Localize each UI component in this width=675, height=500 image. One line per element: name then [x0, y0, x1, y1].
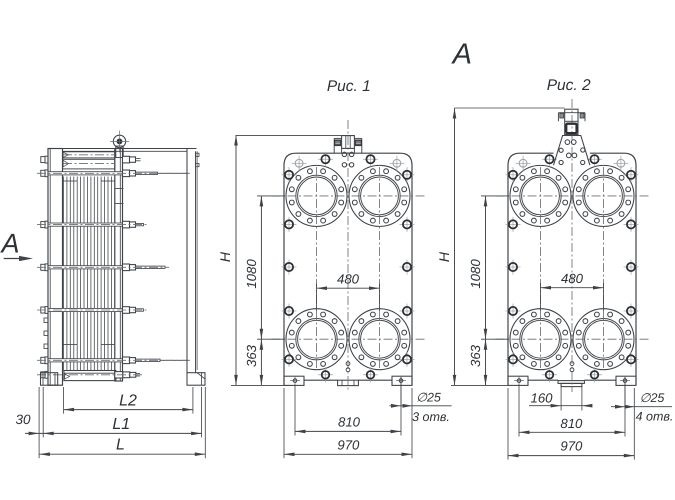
svg-text:∅25: ∅25 — [416, 391, 441, 405]
svg-text:1080: 1080 — [468, 259, 483, 289]
svg-text:L2: L2 — [119, 392, 137, 409]
svg-text:L: L — [116, 437, 125, 454]
svg-text:1080: 1080 — [244, 259, 259, 289]
svg-text:Рис. 1: Рис. 1 — [327, 78, 371, 95]
svg-text:480: 480 — [337, 272, 360, 287]
svg-text:А: А — [451, 39, 472, 71]
svg-text:363: 363 — [468, 344, 483, 367]
svg-text:∅25: ∅25 — [640, 391, 665, 405]
svg-text:H: H — [217, 251, 233, 262]
svg-text:4 отв.: 4 отв. — [636, 409, 674, 423]
svg-text:480: 480 — [561, 271, 584, 286]
svg-text:А: А — [0, 229, 20, 259]
svg-text:160: 160 — [530, 390, 553, 405]
svg-text:363: 363 — [244, 344, 259, 367]
svg-text:970: 970 — [560, 439, 583, 454]
svg-text:3 отв.: 3 отв. — [412, 410, 450, 424]
svg-text:970: 970 — [337, 437, 360, 452]
svg-text:30: 30 — [15, 412, 31, 427]
svg-text:810: 810 — [338, 415, 361, 430]
svg-text:H: H — [436, 251, 452, 262]
svg-text:L1: L1 — [112, 416, 130, 433]
svg-text:Рис. 2: Рис. 2 — [547, 77, 591, 94]
svg-text:810: 810 — [560, 416, 583, 431]
